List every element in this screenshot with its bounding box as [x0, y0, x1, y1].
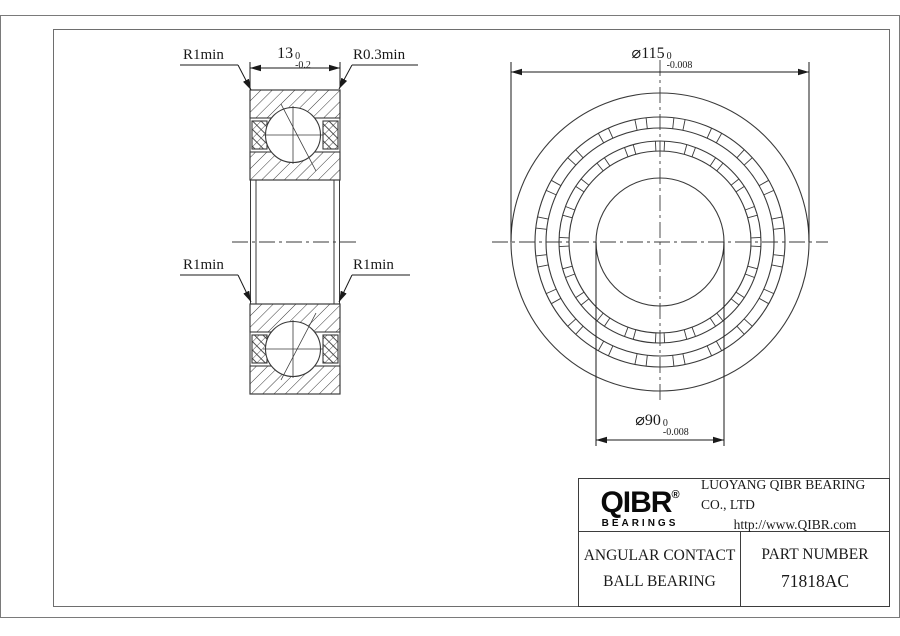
outer-diameter-value: ⌀115	[632, 45, 665, 62]
outer-diameter-dimension-text: ⌀1150-0.008	[632, 46, 693, 70]
radius-label-top-left: R1min	[183, 48, 224, 63]
outer-diameter-tol-lower: -0.008	[667, 61, 693, 70]
bore-diameter-dimension-text: ⌀900-0.008	[635, 413, 688, 437]
bore-diameter-value: ⌀90	[635, 412, 661, 429]
radius-label-top-right: R0.3min	[353, 48, 405, 63]
registered-trademark-symbol: ®	[671, 489, 679, 501]
product-type-line1: ANGULAR CONTACT	[584, 543, 736, 569]
part-number-value: 71818AC	[781, 567, 849, 595]
leader-arrow	[238, 65, 251, 90]
title-block-detail-row: ANGULAR CONTACT BALL BEARING PART NUMBER…	[579, 532, 889, 606]
front-view-centerlines	[492, 60, 828, 400]
leader-arrow	[339, 275, 352, 302]
title-block-header-row: QIBR® BEARINGS LUOYANG QIBR BEARING CO.,…	[579, 479, 889, 532]
bearing-drawing-sheet: { "colors": { "line": "#3a3a3a", "frame"…	[0, 0, 900, 636]
product-type-line2: BALL BEARING	[603, 569, 716, 595]
bore-diameter-tol-lower: -0.008	[663, 428, 689, 437]
section-view-drawing	[232, 90, 358, 394]
part-number-cell: PART NUMBER 71818AC	[741, 532, 889, 606]
product-type-cell: ANGULAR CONTACT BALL BEARING	[579, 532, 741, 606]
company-name: LUOYANG QIBR BEARING CO., LTD	[701, 475, 889, 515]
logo-text: QIBR	[600, 486, 671, 519]
width-dimension-text: 130-0.2	[277, 46, 311, 70]
width-tol-lower: -0.2	[295, 61, 311, 70]
company-logo: QIBR® BEARINGS	[579, 479, 701, 531]
leader-arrow	[339, 65, 352, 89]
logo-subtext: BEARINGS	[602, 518, 679, 529]
radius-label-mid-left: R1min	[183, 258, 224, 273]
width-value: 13	[277, 45, 293, 62]
leader-arrow	[238, 275, 251, 302]
title-block: QIBR® BEARINGS LUOYANG QIBR BEARING CO.,…	[578, 478, 890, 607]
part-number-label: PART NUMBER	[761, 543, 868, 567]
front-view-drawing	[492, 60, 828, 400]
company-info: LUOYANG QIBR BEARING CO., LTD http://www…	[701, 479, 889, 531]
radius-label-mid-right: R1min	[353, 258, 394, 273]
logo-wordmark: QIBR®	[600, 481, 679, 517]
